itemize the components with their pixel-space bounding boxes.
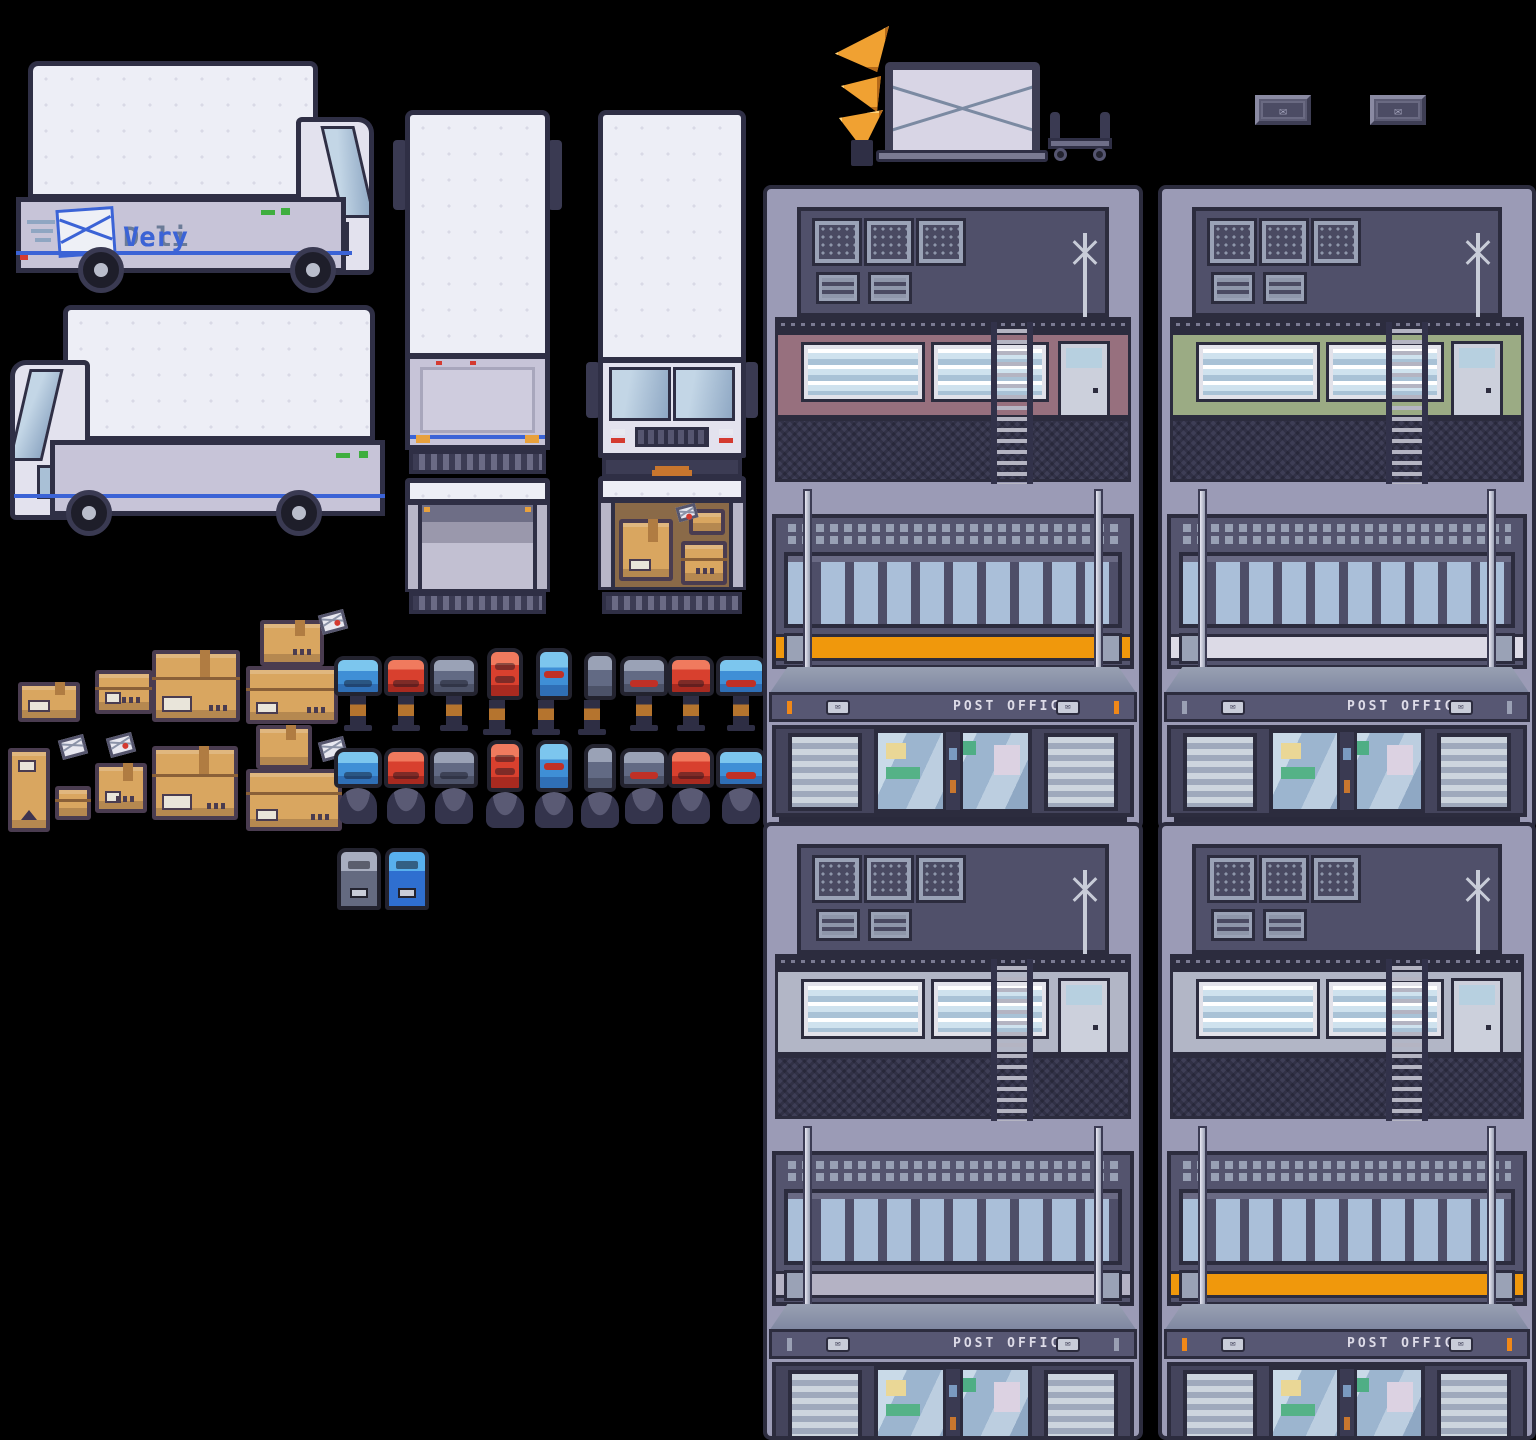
awning-tick bbox=[1114, 701, 1119, 714]
ladder bbox=[991, 322, 1033, 484]
mailbox-red-front bbox=[487, 648, 523, 700]
mailbox-blue-side bbox=[716, 656, 766, 696]
door-stop bbox=[424, 507, 430, 512]
green-marker bbox=[281, 208, 290, 215]
roof-area bbox=[797, 844, 1109, 954]
windshield bbox=[609, 367, 671, 421]
vent-row bbox=[788, 1161, 1118, 1169]
hatched-wall bbox=[775, 418, 1131, 482]
poster bbox=[886, 767, 920, 779]
shop-door bbox=[943, 729, 963, 813]
mailbox-red-side bbox=[668, 656, 714, 696]
ac-unit-icon bbox=[1210, 858, 1254, 900]
roof-vent-icon bbox=[871, 275, 909, 301]
side-pillar bbox=[730, 500, 746, 590]
post-office-building-bottom-left: ✉ POST OFFICE ✉ bbox=[763, 822, 1143, 1440]
truck-cab-front bbox=[598, 358, 746, 458]
mailbox-blue-front bbox=[536, 740, 572, 792]
truck-cargo-box bbox=[598, 110, 746, 362]
envelope-icon: ✉ bbox=[826, 700, 850, 715]
ac-unit-icon bbox=[1314, 221, 1358, 263]
mailbox-post bbox=[350, 696, 366, 726]
window-strip bbox=[784, 1189, 1122, 1265]
ladder bbox=[991, 959, 1033, 1121]
mailbox-gray-side bbox=[430, 748, 478, 788]
support-pole bbox=[1094, 1126, 1103, 1318]
poster bbox=[886, 1404, 920, 1416]
shop-facade bbox=[1167, 1151, 1527, 1306]
shuttered-window bbox=[1183, 733, 1257, 811]
awning-face: ✉ POST OFFICE ✉ bbox=[769, 1329, 1137, 1359]
blue-stripe bbox=[14, 494, 385, 498]
poster bbox=[994, 745, 1020, 775]
shuttered-window bbox=[1183, 1370, 1257, 1440]
mailbox-gray-front bbox=[620, 656, 668, 696]
awning-face: ✉ POST OFFICE ✉ bbox=[1164, 1329, 1530, 1359]
ac-unit-icon bbox=[919, 221, 963, 263]
mailbox-post bbox=[584, 700, 600, 730]
awning-tick bbox=[787, 701, 792, 714]
package bbox=[246, 769, 342, 831]
post-office-sign: POST OFFICE bbox=[953, 695, 1072, 719]
upper-floor bbox=[1170, 332, 1524, 418]
awning-tick bbox=[1507, 1338, 1512, 1351]
awning: ✉ POST OFFICE ✉ bbox=[769, 1304, 1137, 1362]
shuttered-window bbox=[1044, 733, 1118, 811]
cart-handle bbox=[1100, 112, 1110, 140]
package-tall bbox=[8, 748, 50, 832]
upper-floor bbox=[775, 332, 1131, 418]
postal-horn bbox=[833, 18, 893, 166]
poster bbox=[1281, 1380, 1301, 1396]
shop-door bbox=[1337, 1366, 1357, 1440]
mailbox-red-side bbox=[384, 748, 428, 788]
truck-cargo-box bbox=[28, 61, 318, 199]
mailbox-dome-base bbox=[672, 788, 710, 824]
support-pole bbox=[1487, 489, 1496, 681]
mailbox-blue-side bbox=[334, 656, 382, 696]
mailbox-gray-side bbox=[430, 656, 478, 696]
accent-band bbox=[1171, 1271, 1523, 1298]
truck-side-left bbox=[8, 300, 385, 535]
support-pole bbox=[1198, 489, 1207, 681]
upper-door bbox=[1058, 978, 1110, 1055]
side-pillar bbox=[534, 502, 550, 592]
speed-lines bbox=[27, 220, 57, 250]
support-pole bbox=[803, 1126, 812, 1318]
vent-row bbox=[1183, 1173, 1511, 1181]
package bbox=[256, 725, 312, 769]
headlight-right bbox=[719, 429, 733, 435]
storefront bbox=[772, 725, 1134, 817]
truck-rear-lower bbox=[405, 354, 550, 450]
cornice bbox=[775, 317, 1131, 332]
roof-vent-icon bbox=[1266, 275, 1304, 301]
mailbox-post bbox=[398, 696, 414, 726]
horn-loop bbox=[841, 72, 881, 112]
envelope-icon: ✉ bbox=[1376, 101, 1420, 119]
accent-band bbox=[1171, 634, 1523, 661]
roof-sliver bbox=[598, 476, 746, 502]
mailbox-dome-base bbox=[486, 792, 524, 828]
truck-cargo-box bbox=[63, 305, 375, 441]
mailbox-blue-side bbox=[716, 748, 766, 788]
package-small bbox=[55, 786, 91, 820]
roof-vent-icon bbox=[1266, 912, 1304, 938]
envelope-icon: ✉ bbox=[1261, 101, 1305, 119]
cargo-interior-boxes bbox=[612, 500, 732, 590]
parcel-locker-gray bbox=[337, 848, 381, 910]
upper-window bbox=[804, 982, 922, 1036]
headlight-left bbox=[611, 429, 625, 435]
mail-slot-plaque: ✉ bbox=[1370, 95, 1426, 125]
wheel bbox=[78, 247, 124, 293]
mailbox-post bbox=[538, 700, 554, 730]
package-stack bbox=[246, 725, 344, 832]
accent-band bbox=[776, 634, 1130, 661]
package-stack bbox=[246, 618, 342, 726]
awning-tick bbox=[1182, 701, 1187, 714]
package bbox=[246, 666, 338, 724]
mailbox-post bbox=[636, 696, 652, 726]
hatched-wall bbox=[1170, 1055, 1524, 1119]
post-office-sign: POST OFFICE bbox=[953, 1332, 1072, 1356]
cornice bbox=[1170, 317, 1524, 332]
support-pole bbox=[803, 489, 812, 681]
upper-door bbox=[1451, 341, 1503, 418]
mailbox-gray-front bbox=[620, 748, 668, 788]
roof-vent-icon bbox=[819, 275, 857, 301]
envelope-icon: ✉ bbox=[1056, 700, 1080, 715]
poster bbox=[1281, 767, 1315, 779]
antenna-icon bbox=[1476, 233, 1480, 319]
antenna-icon bbox=[1476, 870, 1480, 956]
mailbox-red-side bbox=[384, 656, 428, 696]
awning-tick bbox=[1182, 1338, 1187, 1351]
side-mirror bbox=[744, 362, 758, 418]
horn-bell-top bbox=[835, 26, 889, 72]
side-mirror bbox=[548, 140, 562, 210]
mailbox-blue-side bbox=[334, 748, 382, 788]
support-pole bbox=[1487, 1126, 1496, 1318]
envelope bbox=[58, 734, 88, 760]
envelope-icon: ✉ bbox=[1056, 1337, 1080, 1352]
window-strip bbox=[784, 552, 1122, 628]
roof-vent-icon bbox=[1214, 912, 1252, 938]
mailbox-red-front bbox=[487, 740, 523, 792]
ladder bbox=[1386, 959, 1428, 1121]
awning-tick bbox=[1507, 701, 1512, 714]
upper-floor bbox=[775, 969, 1131, 1055]
hatched-wall bbox=[1170, 418, 1524, 482]
roof-vent-icon bbox=[1214, 275, 1252, 301]
envelope bbox=[318, 609, 348, 635]
signal-right bbox=[719, 438, 733, 443]
poster bbox=[886, 1380, 906, 1396]
cornice bbox=[775, 954, 1131, 969]
shuttered-window bbox=[788, 1370, 862, 1440]
ac-unit-icon bbox=[1314, 858, 1358, 900]
post-office-building-top-left: ✉ POST OFFICE ✉ bbox=[763, 185, 1143, 830]
hand-cart bbox=[1048, 112, 1112, 162]
roof-vent-icon bbox=[871, 912, 909, 938]
wheel bbox=[276, 490, 322, 536]
mailbox-red-side bbox=[668, 748, 714, 788]
mailbox-dome-base bbox=[535, 792, 573, 828]
awning-face: ✉ POST OFFICE ✉ bbox=[769, 692, 1137, 722]
rear-bumper bbox=[409, 450, 546, 474]
mail-slot-plaque: ✉ bbox=[1255, 95, 1311, 125]
envelope bbox=[106, 732, 136, 758]
cart-wheel bbox=[1054, 148, 1067, 161]
truck-side-right: DeliVery bbox=[8, 55, 373, 295]
truck-front bbox=[598, 110, 746, 482]
storefront bbox=[1167, 1362, 1527, 1440]
envelope-sign-base bbox=[876, 150, 1048, 162]
mailbox-dome-base bbox=[387, 788, 425, 824]
roof-area bbox=[1192, 844, 1502, 954]
package-flat bbox=[18, 682, 80, 722]
upper-floor bbox=[1170, 969, 1524, 1055]
mailbox-post bbox=[446, 696, 462, 726]
hazard-mark bbox=[525, 435, 539, 443]
green-marker bbox=[336, 453, 350, 458]
window-strip bbox=[1179, 1189, 1515, 1265]
wheel bbox=[290, 247, 336, 293]
mailbox-post bbox=[489, 700, 505, 730]
envelope-icon: ✉ bbox=[1449, 700, 1473, 715]
awning-tick bbox=[787, 1338, 792, 1351]
vent-row bbox=[1183, 1161, 1511, 1169]
cart-handle bbox=[1050, 112, 1060, 140]
signal-left bbox=[611, 438, 625, 443]
vent-row bbox=[1183, 536, 1511, 544]
wheel bbox=[66, 490, 112, 536]
package-large bbox=[152, 746, 238, 820]
awning: ✉ POST OFFICE ✉ bbox=[1164, 1304, 1530, 1362]
mailbox-dome-base bbox=[625, 788, 663, 824]
ac-unit-icon bbox=[1262, 221, 1306, 263]
awning-tick bbox=[1114, 1338, 1119, 1351]
mailbox-dome-base bbox=[722, 788, 760, 824]
shuttered-window bbox=[1437, 1370, 1511, 1440]
mailbox-dome-base bbox=[339, 788, 377, 824]
upper-window bbox=[804, 345, 922, 399]
shop-door bbox=[943, 1366, 963, 1440]
poster bbox=[886, 743, 906, 759]
envelope-icon: ✉ bbox=[1221, 700, 1245, 715]
roller-door bbox=[420, 367, 535, 433]
grille bbox=[635, 427, 709, 447]
parcel-locker-blue bbox=[385, 848, 429, 910]
mailbox-post bbox=[733, 696, 749, 726]
shop-facade bbox=[772, 1151, 1134, 1306]
envelope-icon: ✉ bbox=[826, 1337, 850, 1352]
vent-row bbox=[1183, 524, 1511, 532]
window-strip bbox=[1179, 552, 1515, 628]
package bbox=[681, 541, 727, 585]
antenna-icon bbox=[1083, 233, 1087, 319]
mailbox-gray-profile bbox=[584, 652, 616, 700]
green-marker bbox=[359, 451, 368, 458]
support-pole bbox=[1198, 1126, 1207, 1318]
post-office-building-top-right: ✉ POST OFFICE ✉ bbox=[1158, 185, 1536, 830]
vent-row bbox=[788, 1173, 1118, 1181]
ladder bbox=[1386, 322, 1428, 484]
green-marker bbox=[261, 210, 275, 215]
package-medium bbox=[95, 763, 147, 813]
ac-unit-icon bbox=[815, 221, 859, 263]
post-office-building-bottom-right: ✉ POST OFFICE ✉ bbox=[1158, 822, 1536, 1440]
ac-unit-icon bbox=[867, 221, 911, 263]
ac-unit-icon bbox=[1262, 858, 1306, 900]
truck-rear-open-boxes bbox=[598, 470, 746, 618]
awning: ✉ POST OFFICE ✉ bbox=[769, 667, 1137, 725]
shop-facade bbox=[772, 514, 1134, 669]
storefront bbox=[772, 1362, 1134, 1440]
truck-rear-open-empty bbox=[405, 478, 550, 618]
awning-top bbox=[1164, 667, 1530, 694]
logo-part-very: Very bbox=[123, 224, 188, 251]
accent-band bbox=[776, 1271, 1130, 1298]
envelope-sign bbox=[885, 62, 1040, 158]
awning: ✉ POST OFFICE ✉ bbox=[1164, 667, 1530, 725]
cart-wheel bbox=[1093, 148, 1106, 161]
roof-area bbox=[797, 207, 1109, 317]
windshield bbox=[673, 367, 735, 421]
rear-light bbox=[436, 361, 442, 365]
door-stop bbox=[525, 507, 531, 512]
rear-light bbox=[470, 361, 476, 365]
storefront bbox=[1167, 725, 1527, 817]
shuttered-window bbox=[1437, 733, 1511, 811]
upper-door bbox=[1451, 978, 1503, 1055]
ac-unit-icon bbox=[815, 858, 859, 900]
hazard-mark bbox=[416, 435, 430, 443]
ac-unit-icon bbox=[919, 858, 963, 900]
hatched-wall bbox=[775, 1055, 1131, 1119]
awning-top bbox=[769, 1304, 1137, 1331]
upper-window bbox=[1199, 345, 1317, 399]
package bbox=[260, 620, 324, 666]
poster bbox=[1387, 1382, 1413, 1412]
support-pole bbox=[1094, 489, 1103, 681]
roof-vent-icon bbox=[819, 912, 857, 938]
package bbox=[619, 519, 673, 581]
vent-row bbox=[788, 536, 1118, 544]
antenna-icon bbox=[1083, 870, 1087, 956]
poster bbox=[1387, 745, 1413, 775]
poster bbox=[1281, 743, 1301, 759]
shop-facade bbox=[1167, 514, 1527, 669]
poster bbox=[1281, 1404, 1315, 1416]
upper-window bbox=[1199, 982, 1317, 1036]
mailbox-dome-base bbox=[435, 788, 473, 824]
mailbox-post bbox=[683, 696, 699, 726]
horn-stand bbox=[851, 140, 873, 166]
shop-door bbox=[1337, 729, 1357, 813]
truck-cargo-box bbox=[405, 110, 550, 358]
roof-sliver bbox=[405, 478, 550, 504]
poster bbox=[994, 1382, 1020, 1412]
shuttered-window bbox=[788, 733, 862, 811]
envelope-icon: ✉ bbox=[1221, 1337, 1245, 1352]
upper-door bbox=[1058, 341, 1110, 418]
vent-row bbox=[788, 524, 1118, 532]
roof-area bbox=[1192, 207, 1502, 317]
rear-bumper bbox=[409, 592, 546, 614]
tail-light bbox=[20, 255, 28, 260]
rear-bumper bbox=[602, 592, 742, 614]
truck-rear-closed bbox=[405, 110, 550, 482]
shuttered-window bbox=[1044, 1370, 1118, 1440]
package-medium bbox=[95, 670, 153, 714]
mailbox-dome-base bbox=[581, 792, 619, 828]
awning-top bbox=[769, 667, 1137, 694]
sprite-sheet-canvas: DeliVery bbox=[0, 0, 1536, 1440]
mailbox-gray-profile bbox=[584, 744, 616, 792]
envelope-icon: ✉ bbox=[1449, 1337, 1473, 1352]
awning-top bbox=[1164, 1304, 1530, 1331]
awning-face: ✉ POST OFFICE ✉ bbox=[1164, 692, 1530, 722]
ac-unit-icon bbox=[867, 858, 911, 900]
ac-unit-icon bbox=[1210, 221, 1254, 263]
cornice bbox=[1170, 954, 1524, 969]
package-large bbox=[152, 650, 240, 722]
cargo-interior-empty bbox=[419, 502, 536, 592]
mailbox-blue-front bbox=[536, 648, 572, 700]
